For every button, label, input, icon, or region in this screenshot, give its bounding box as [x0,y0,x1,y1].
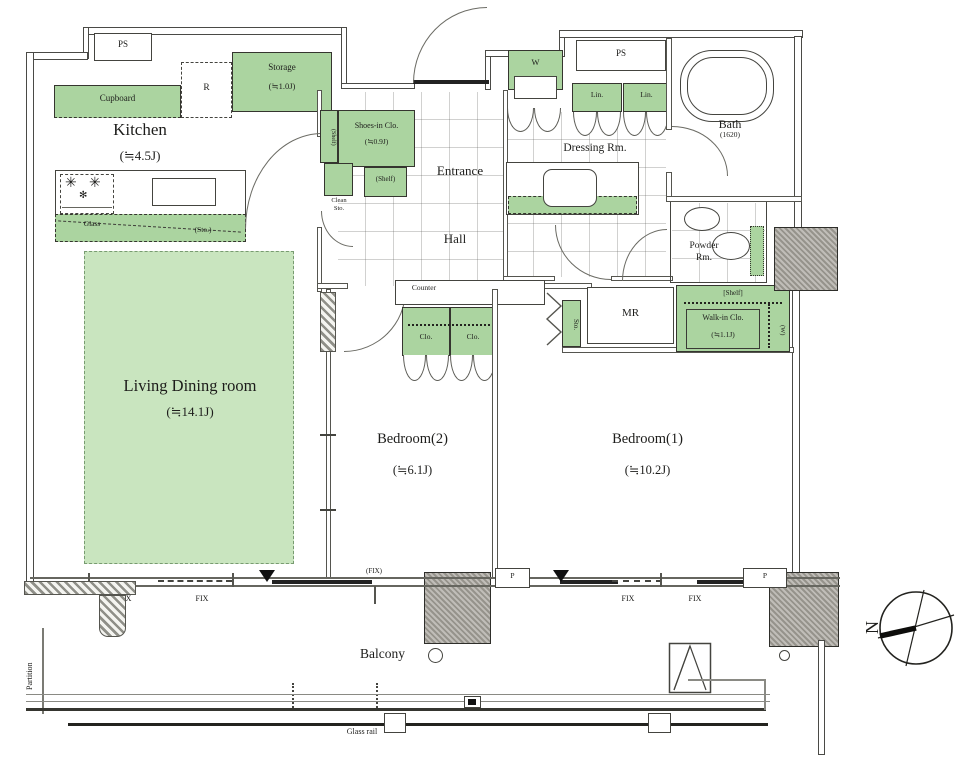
glass-rail-line-2 [26,701,770,702]
living-name: Living Dining room [100,377,280,395]
entry-marker-triangle [259,570,275,582]
balcony-wall-stub-v [99,595,126,637]
closet-1-label: Clo. [402,333,450,341]
living-area: (≒14.1J) [100,405,280,419]
expansion-joint-dots [292,683,294,711]
sliding-door-pocket [320,292,336,352]
wall-bedroom1-bedroom2 [492,289,498,579]
powder-label1: Powder [676,241,732,251]
wall-entrance-alcove [341,83,415,89]
washer-pan [514,76,557,99]
balcony-circle [428,648,443,663]
wall-right-lower [792,289,800,581]
powder-label2: Rm. [676,253,732,263]
glass-rail-line-3 [26,708,766,711]
wall-hall-south-1 [317,283,348,289]
sash-line-lower [30,585,840,587]
bedroom1-name: Bedroom(1) [585,432,710,448]
fix-label: FIX [182,595,222,604]
clean-storage [324,163,353,196]
shoes-shelf-strip-label: (Shelf) [322,113,336,161]
clean-storage-label1: Clean [320,197,358,204]
mullion-tick [660,573,662,587]
fix-label: FIX [608,595,648,604]
fix-window-dashed [612,580,662,582]
balcony-drain-inner [468,699,476,705]
toilet-tank [750,226,764,276]
pillar-right-middle [774,227,838,291]
balcony-circle [779,650,790,661]
kitchen-sto-label: (Sto.) [178,226,228,234]
fix-label: FIX [675,595,715,604]
bathtub-inner [687,57,767,115]
vanity-sink [543,169,597,207]
p-label-2: P [743,572,787,580]
balcony-wall-stub-h [24,581,136,595]
rail-post-box [384,713,406,733]
walkin-shelf-label: [Shelf] [676,290,790,298]
clean-storage-door-swing [321,211,353,247]
stove-front-line [62,207,112,208]
linen-1-label: Lin. [572,91,622,99]
closet-hanger-rail [408,324,490,326]
balcony-step-line [688,679,766,681]
glass-top-label: Glass [70,220,114,228]
wall-entrance-left [341,27,347,89]
sash-line-upper [30,577,840,579]
wall-tick [320,434,336,436]
pillar-bottom-center [424,572,491,644]
counter-label: Counter [400,284,448,292]
burner-icon: ✳ [89,175,101,192]
wall-tick [320,509,336,511]
glass-rail-line-1 [26,694,770,695]
fix-tick [374,586,376,604]
kitchen-door-swing [245,133,322,229]
bedroom2-area: (≒6.1J) [350,464,475,478]
wall-left [26,52,34,590]
closet-2-label: Clo. [450,333,496,341]
bedroom1-storage-label: Sto. [564,306,579,344]
p-label-1: P [495,572,530,580]
refrigerator-label: R [181,83,232,93]
balcony-right-wall [818,640,825,755]
meter-room-label: MR [587,307,674,319]
walkin-w-label: (W) [772,310,786,350]
walkin-divider [768,304,770,348]
cupboard-label: Cupboard [54,94,181,104]
dressing-label: Dressing Rm. [540,142,650,155]
bedroom1-area: (≒10.2J) [585,464,710,478]
compass: N [858,584,968,678]
kitchen-area: (≒4.5J) [85,149,195,163]
ps-left-label: PS [94,40,152,50]
rail-post-box [648,713,671,733]
kitchen-sink [152,178,216,206]
powder-sink [684,207,720,231]
kitchen-name: Kitchen [85,121,195,140]
fix-paren-label: (FIX) [352,568,396,576]
entrance-label: Entrance [420,164,500,178]
mullion-tick [232,573,234,587]
balcony-step-line-v [764,679,766,710]
bath-size: (1620) [690,131,770,139]
burner-icon: ✳ [65,175,77,192]
fix-window-dashed [158,580,232,582]
ps-right-label: PS [576,49,666,59]
wall-left-step-h [26,52,88,60]
wall-bath-west-upper [666,38,672,130]
shoes-lower-shelf-label: (Shelf) [364,176,407,184]
burner-icon-small: ✻ [79,190,87,201]
walkin-name: Walk-in Clo. [686,314,760,323]
closet-door-curve [403,355,426,381]
evacuation-hatch [668,642,712,694]
sliding-window-b1 [697,580,745,584]
entrance-door-swing [413,7,487,83]
bedroom2-name: Bedroom(2) [350,432,475,448]
wall-top-right [559,30,803,38]
shoes-closet-name: Shoes-in Clo. [338,122,415,131]
hall-label: Hall [420,232,490,246]
sliding-window-ld [272,580,372,584]
closet-door-curve [450,355,473,381]
linen-2-label: Lin. [623,91,670,99]
expansion-joint-dots [376,683,378,711]
shoes-closet-area: (≒0.9J) [338,138,415,146]
walkin-area: (≒1.1J) [686,331,760,339]
washer-label: W [508,58,563,67]
balcony-label: Balcony [345,647,420,662]
closet-door-curve [426,355,449,381]
storage-label: Storage [232,63,332,73]
entry-marker-triangle [553,570,569,582]
compass-north-label: N [862,621,882,634]
floor-plan: PS PS Cupboard R Storage (≒1.0J) Kitchen… [0,0,971,778]
